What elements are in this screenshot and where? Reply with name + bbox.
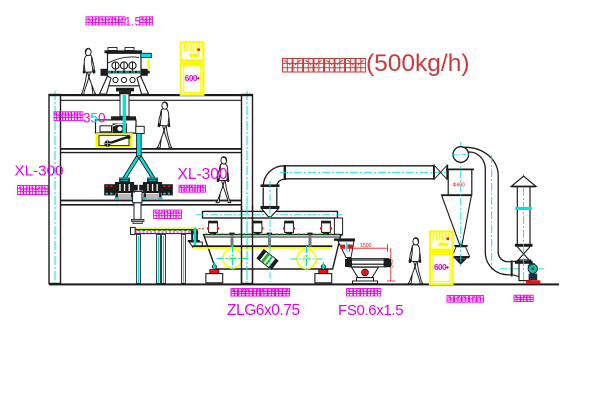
svg-text:1500: 1500	[360, 243, 372, 249]
svg-text:XL-300: XL-300	[15, 163, 64, 180]
svg-text:FS0.6x1.5: FS0.6x1.5	[338, 302, 403, 319]
svg-text:600: 600	[185, 74, 198, 83]
svg-text:(500kg/h): (500kg/h)	[366, 50, 470, 77]
svg-text:XL-300: XL-300	[178, 166, 228, 183]
svg-text:600: 600	[434, 263, 447, 272]
svg-text:1.5: 1.5	[125, 14, 142, 28]
svg-text:5: 5	[90, 110, 98, 125]
svg-text:ZLG6x0.75: ZLG6x0.75	[227, 302, 300, 319]
svg-text:Φ600: Φ600	[453, 183, 466, 189]
